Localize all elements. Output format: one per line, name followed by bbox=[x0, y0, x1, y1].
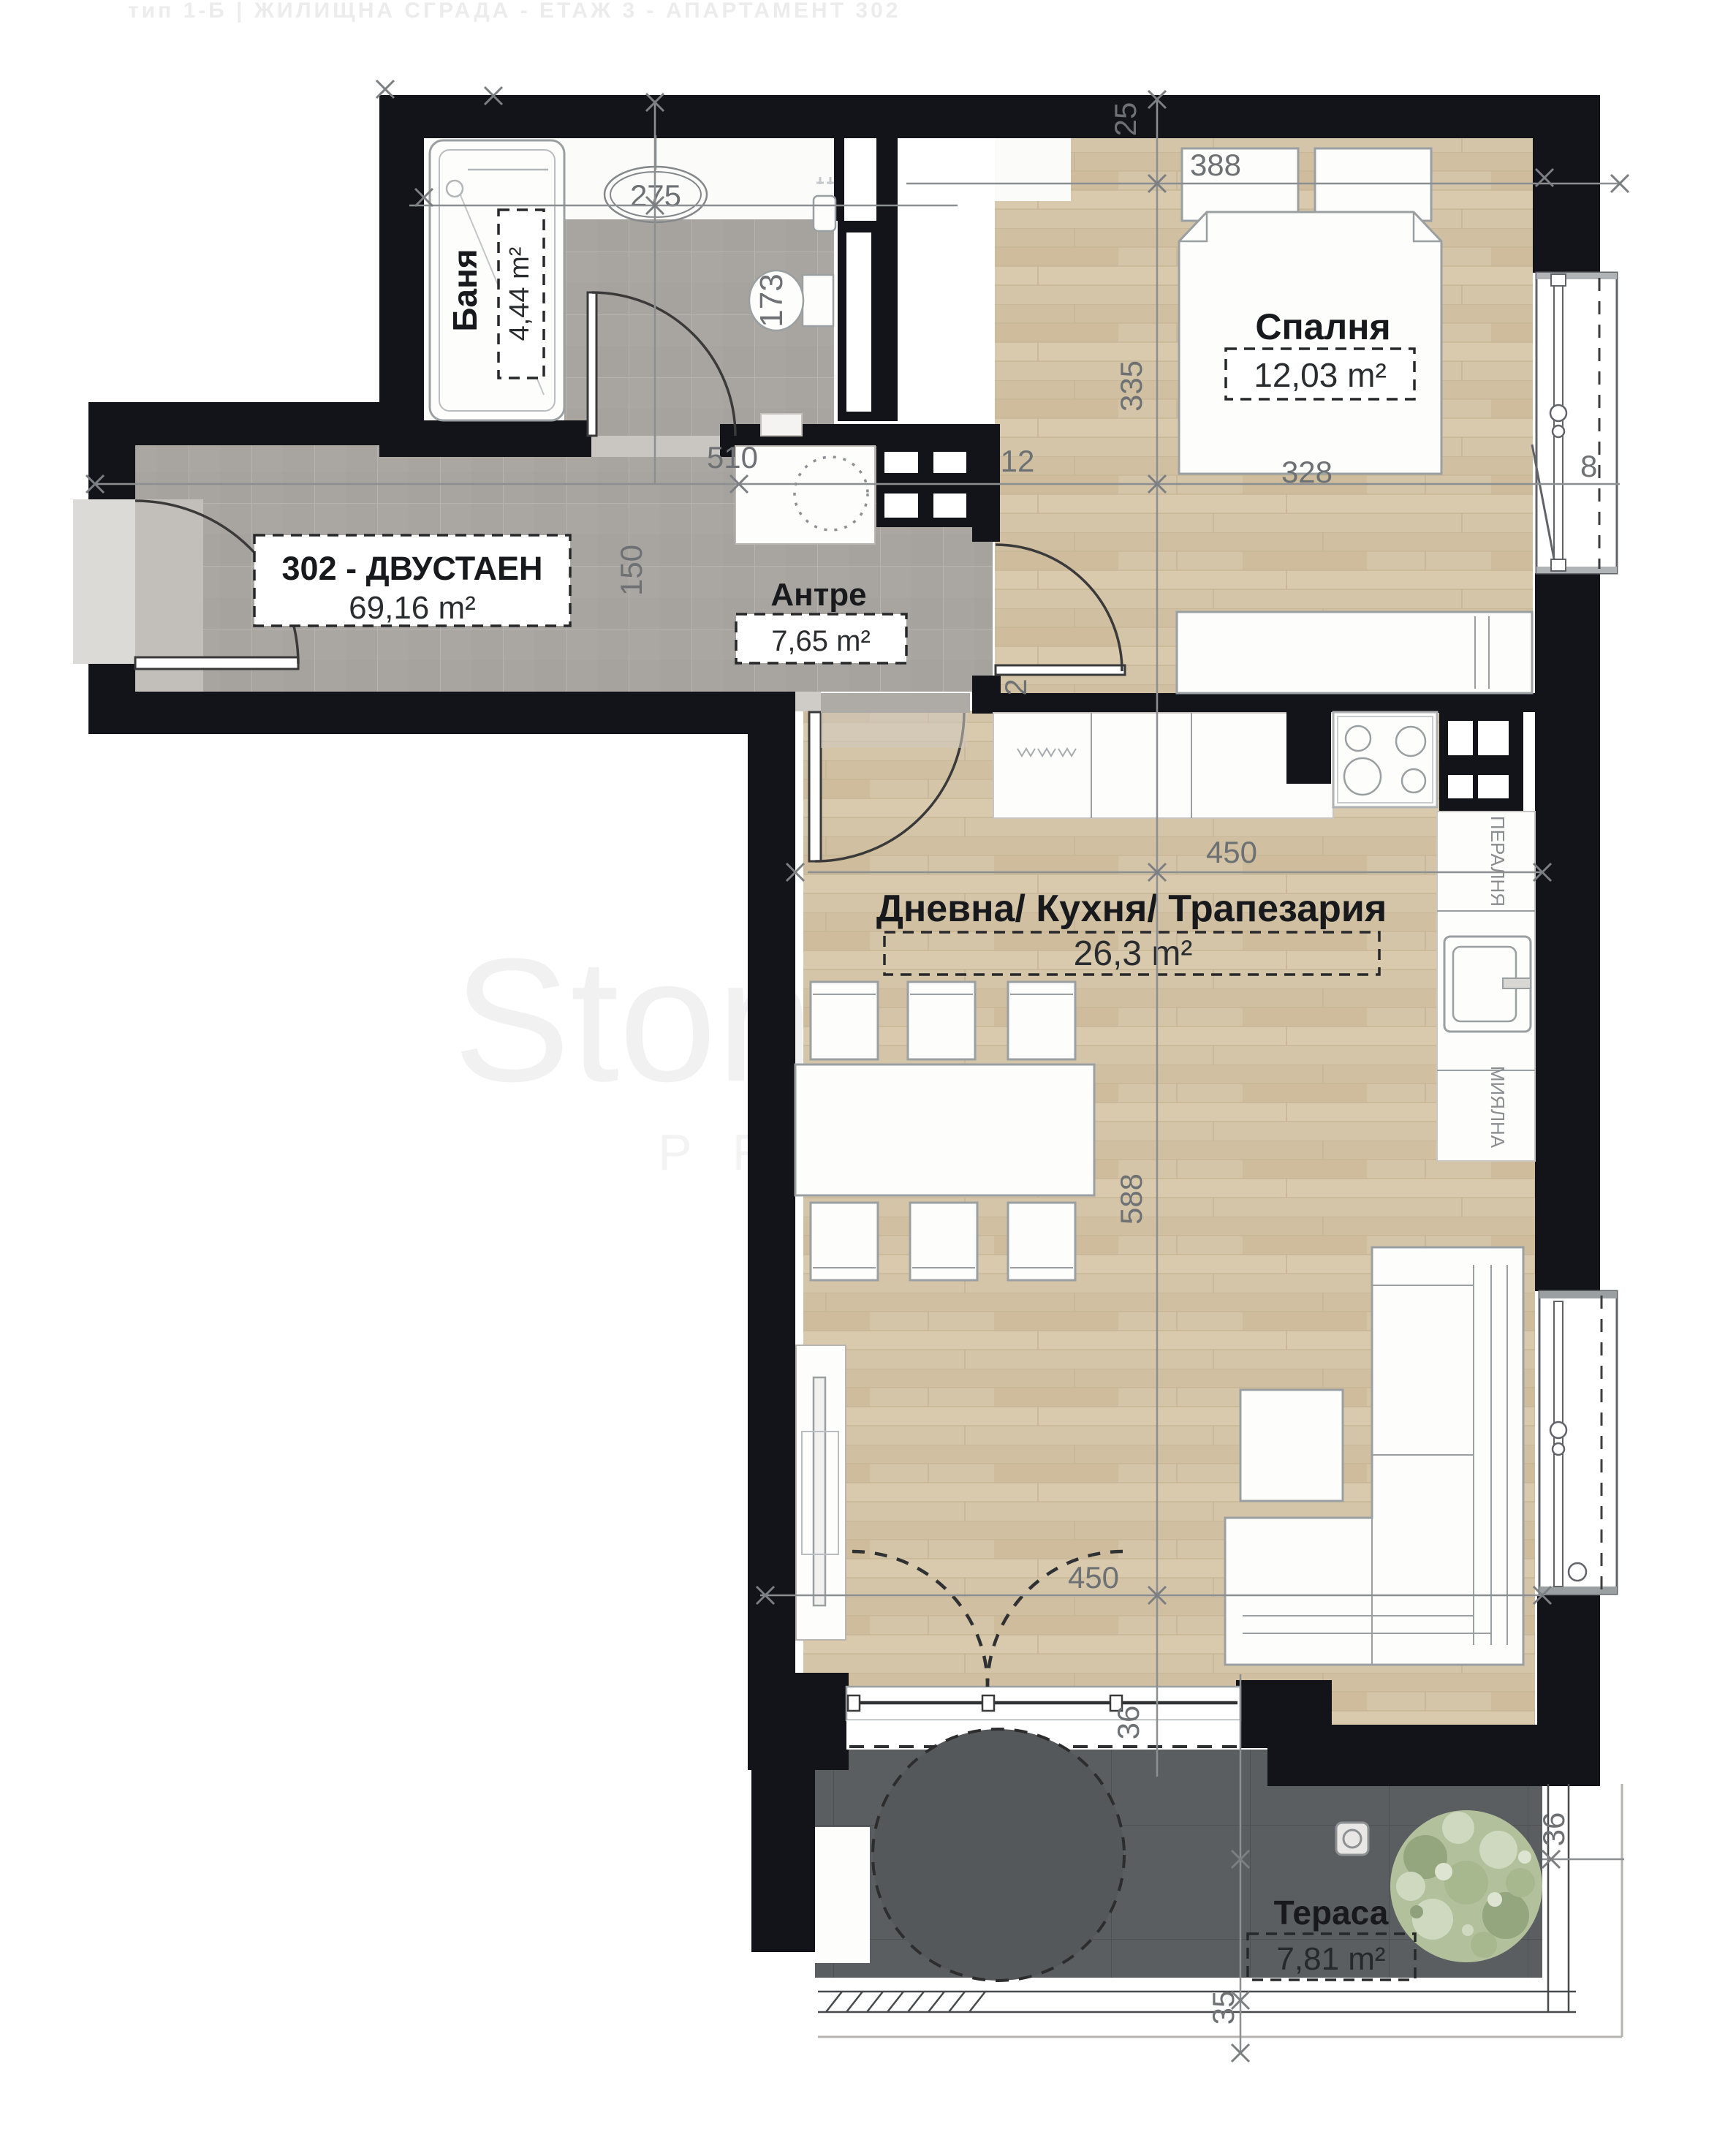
svg-text:4,44 m²: 4,44 m² bbox=[504, 247, 535, 341]
svg-text:328: 328 bbox=[1281, 455, 1333, 489]
svg-text:26,3 m²: 26,3 m² bbox=[1074, 934, 1193, 973]
svg-text:335: 335 bbox=[1114, 360, 1148, 412]
svg-text:69,16 m²: 69,16 m² bbox=[349, 590, 476, 626]
svg-text:510: 510 bbox=[707, 440, 758, 474]
svg-text:тип 1-Б | ЖИЛИЩНА СГРАДА - ЕТА: тип 1-Б | ЖИЛИЩНА СГРАДА - ЕТАЖ 3 - АПАР… bbox=[128, 0, 901, 23]
svg-text:450: 450 bbox=[1068, 1560, 1119, 1595]
svg-text:7,81 m²: 7,81 m² bbox=[1276, 1941, 1385, 1977]
svg-text:302 - ДВУСТАЕН: 302 - ДВУСТАЕН bbox=[282, 550, 543, 587]
svg-text:Тераса: Тераса bbox=[1274, 1894, 1389, 1932]
svg-text:Антре: Антре bbox=[770, 577, 866, 613]
svg-text:2: 2 bbox=[998, 678, 1033, 695]
svg-text:588: 588 bbox=[1114, 1173, 1148, 1225]
svg-text:25: 25 bbox=[1108, 102, 1142, 137]
svg-text:12: 12 bbox=[1001, 444, 1035, 478]
svg-text:Баня: Баня bbox=[446, 249, 484, 331]
svg-text:8: 8 bbox=[1580, 449, 1597, 483]
svg-text:МИЯЛНА: МИЯЛНА bbox=[1487, 1066, 1509, 1149]
svg-text:12,03 m²: 12,03 m² bbox=[1254, 356, 1387, 394]
svg-text:Дневна/ Кухня/ Трапезария: Дневна/ Кухня/ Трапезария bbox=[876, 888, 1387, 930]
svg-text:36: 36 bbox=[1536, 1812, 1571, 1847]
svg-text:7,65 m²: 7,65 m² bbox=[771, 625, 871, 657]
svg-text:450: 450 bbox=[1206, 835, 1257, 869]
svg-text:388: 388 bbox=[1190, 148, 1241, 182]
svg-text:150: 150 bbox=[614, 545, 648, 596]
svg-text:35: 35 bbox=[1206, 1991, 1240, 2025]
svg-text:ПЕРАЛНЯ: ПЕРАЛНЯ bbox=[1487, 816, 1509, 907]
svg-text:Спалня: Спалня bbox=[1255, 306, 1390, 347]
svg-text:173: 173 bbox=[754, 273, 789, 327]
svg-text:36: 36 bbox=[1111, 1706, 1145, 1740]
